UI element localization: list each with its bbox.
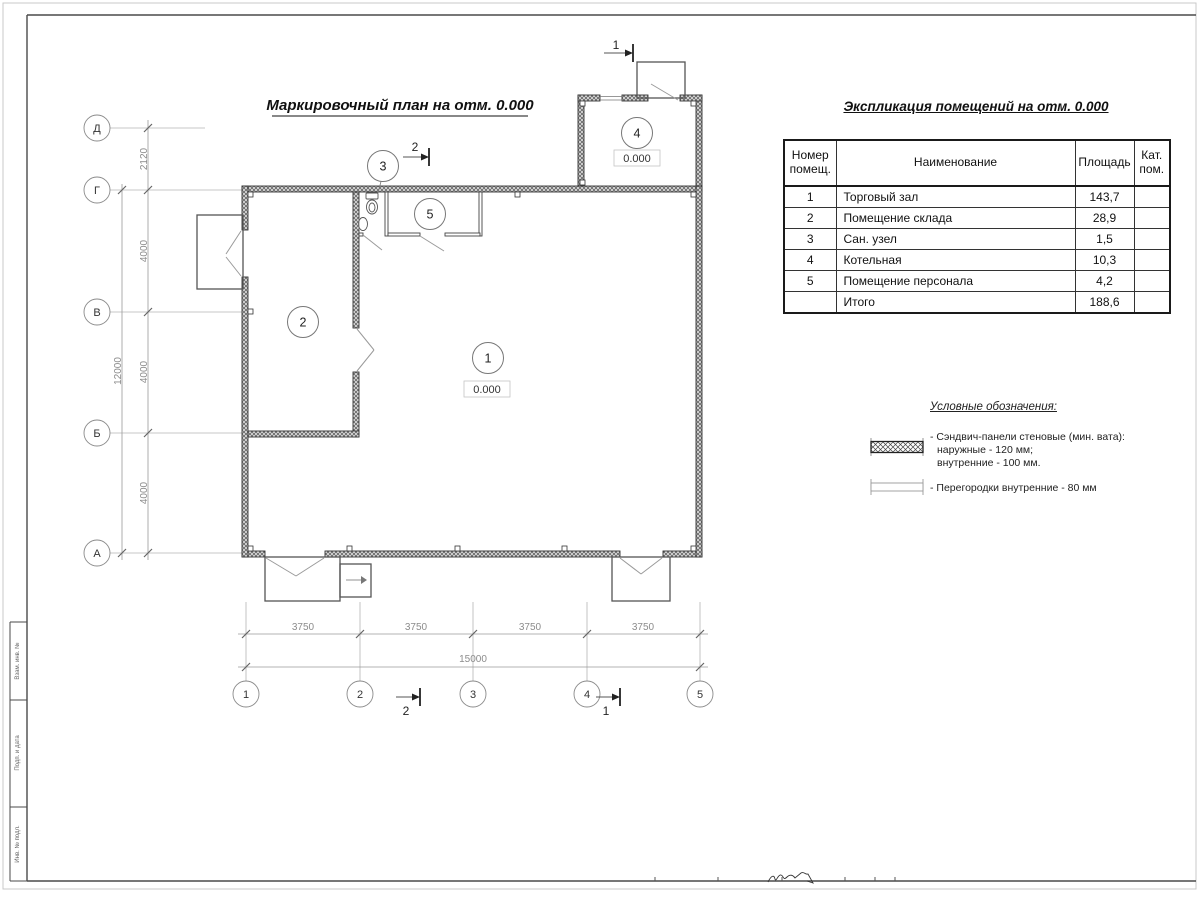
section-mark-label: 1 <box>613 38 620 52</box>
schedule-title: Экспликация помещений на отм. 0.000 <box>783 99 1169 114</box>
room-markers: 1 0.000 2 3 4 0.000 5 <box>288 118 661 398</box>
dim-label: 4000 <box>139 481 150 504</box>
cell-cat <box>1134 186 1170 208</box>
section-marks: 1 2 2 1 <box>396 38 633 718</box>
room-marker-label: 2 <box>300 316 307 330</box>
cell-cat <box>1134 229 1170 250</box>
cell-num: 1 <box>784 186 836 208</box>
cell-area: 188,6 <box>1075 292 1134 314</box>
room-marker-label: 4 <box>634 127 641 141</box>
toilet-icon <box>366 193 378 214</box>
dim-label: 3750 <box>519 622 542 633</box>
table-row: 5 Помещение персонала 4,2 <box>784 271 1170 292</box>
cell-num: 4 <box>784 250 836 271</box>
cell-cat <box>1134 271 1170 292</box>
legend-item-partition: - Перегородки внутренние - 80 мм <box>930 482 1097 495</box>
schedule-header-row: Номер помещ. Наименование Площадь Кат. п… <box>784 140 1170 186</box>
drawing-sheet: Взам. инв. № Подп. и дата Инв. № подл. М… <box>0 0 1200 900</box>
cell-cat <box>1134 292 1170 314</box>
dim-label: 3750 <box>632 622 655 633</box>
cell-name: Торговый зал <box>836 186 1075 208</box>
cell-num: 3 <box>784 229 836 250</box>
cell-name: Котельная <box>836 250 1075 271</box>
legend-line: - Перегородки внутренние - 80 мм <box>930 482 1097 495</box>
col-header-name: Наименование <box>836 140 1075 186</box>
col-header-area: Площадь <box>1075 140 1134 186</box>
stamp-label: Взам. инв. № <box>14 642 21 679</box>
table-row: 4 Котельная 10,3 <box>784 250 1170 271</box>
dimensions-left: 2120 4000 4000 4000 12000 <box>113 120 152 560</box>
dim-label: 4000 <box>139 239 150 262</box>
dim-label: 3750 <box>292 622 315 633</box>
cell-area: 143,7 <box>1075 186 1134 208</box>
legend-title: Условные обозначения: <box>930 401 1057 413</box>
dim-label: 3750 <box>405 622 428 633</box>
cell-num: 2 <box>784 208 836 229</box>
section-mark-label: 2 <box>403 704 410 718</box>
legend-line: наружные - 120 мм; <box>930 444 1125 457</box>
cell-name: Помещение персонала <box>836 271 1075 292</box>
plan-title-text: Маркировочный план на отм. 0.000 <box>266 97 534 114</box>
cell-area: 4,2 <box>1075 271 1134 292</box>
legend-sandwich-panel-symbol <box>868 437 928 457</box>
room-marker-label: 5 <box>427 208 434 222</box>
dim-label: 2120 <box>139 147 150 170</box>
level-mark: 0.000 <box>473 384 501 396</box>
cell-name: Помещение склада <box>836 208 1075 229</box>
table-row: 1 Торговый зал 143,7 <box>784 186 1170 208</box>
dim-total-label: 15000 <box>459 654 487 665</box>
table-row-total: Итого 188,6 <box>784 292 1170 314</box>
stamp-label: Подп. и дата <box>15 735 21 771</box>
cell-cat <box>1134 208 1170 229</box>
entry-porches <box>197 62 685 601</box>
sanitary-fixtures <box>359 193 379 231</box>
axis-bubble-label: А <box>93 548 101 560</box>
axis-bubble-label: Д <box>93 123 101 135</box>
axis-bubbles-bottom: 1 2 3 4 5 <box>233 681 713 707</box>
table-row: 2 Помещение склада 28,9 <box>784 208 1170 229</box>
stamp-label: Инв. № подл. <box>14 825 21 863</box>
axis-bubble-label: 4 <box>584 689 590 701</box>
cell-area: 10,3 <box>1075 250 1134 271</box>
table-row: 3 Сан. узел 1,5 <box>784 229 1170 250</box>
cell-name: Сан. узел <box>836 229 1075 250</box>
axis-bubbles-left: Д Г В Б А <box>84 115 110 566</box>
dim-total-label: 12000 <box>113 357 124 385</box>
level-mark: 0.000 <box>623 153 651 165</box>
cell-name: Итого <box>836 292 1075 314</box>
cell-cat <box>1134 250 1170 271</box>
col-header-number: Номер помещ. <box>784 140 836 186</box>
cell-num: 5 <box>784 271 836 292</box>
axis-bubble-label: 3 <box>470 689 476 701</box>
dim-label: 4000 <box>139 360 150 383</box>
axis-bubble-label: 2 <box>357 689 363 701</box>
room-marker-label: 1 <box>485 352 492 366</box>
axis-bubble-label: 1 <box>243 689 249 701</box>
col-header-category: Кат. пом. <box>1134 140 1170 186</box>
axis-bubble-label: 5 <box>697 689 703 701</box>
axis-bubble-label: В <box>93 307 100 319</box>
legend-line: внутренние - 100 мм. <box>930 457 1125 470</box>
room-schedule: Экспликация помещений на отм. 0.000 Номе… <box>783 99 1169 314</box>
legend-partition-symbol <box>868 478 928 496</box>
legend-item-sandwich: - Сэндвич-панели стеновые (мин. вата): н… <box>930 431 1125 470</box>
ramp-arrow-icon <box>346 576 367 584</box>
axis-bubble-label: Б <box>93 428 100 440</box>
section-mark-label: 1 <box>603 704 610 718</box>
sink-icon <box>359 218 368 231</box>
schedule-table: Номер помещ. Наименование Площадь Кат. п… <box>783 139 1171 314</box>
room-marker-label: 3 <box>380 160 387 174</box>
legend-line: - Сэндвич-панели стеновые (мин. вата): <box>930 431 1125 444</box>
axis-bubble-label: Г <box>94 185 100 197</box>
cell-area: 1,5 <box>1075 229 1134 250</box>
plan-title: Маркировочный план на отм. 0.000 <box>266 97 534 116</box>
cell-num <box>784 292 836 314</box>
section-mark-label: 2 <box>412 140 419 154</box>
cell-area: 28,9 <box>1075 208 1134 229</box>
